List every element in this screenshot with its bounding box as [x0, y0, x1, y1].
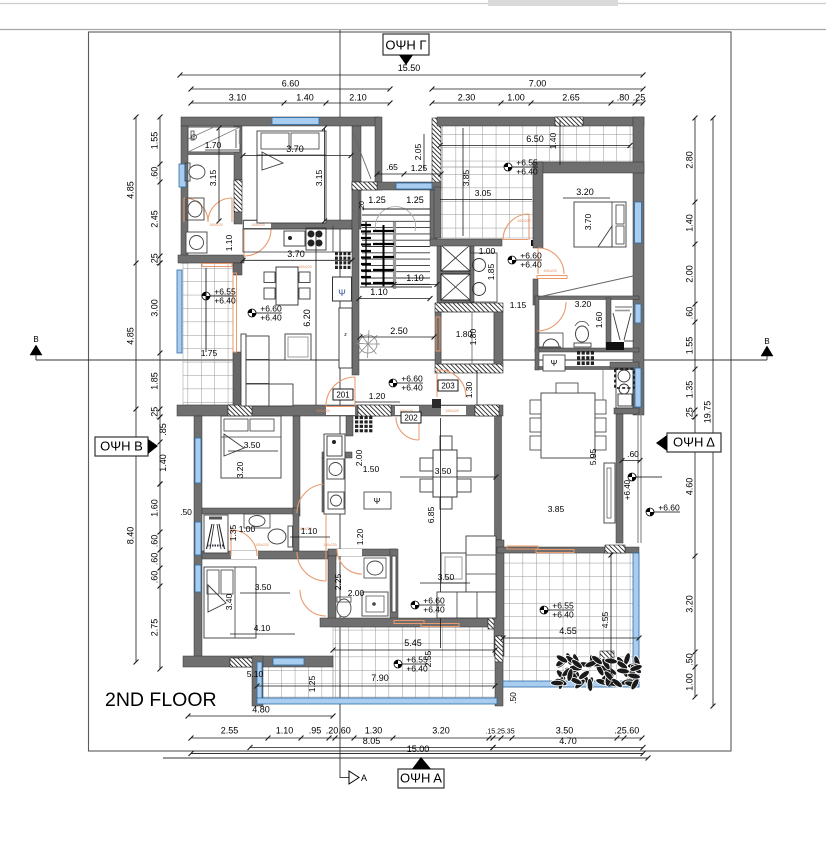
svg-text:Ψ: Ψ	[338, 288, 346, 298]
svg-text:1.10: 1.10	[406, 273, 424, 283]
svg-text:1.40: 1.40	[158, 454, 168, 472]
svg-text:+6.40: +6.40	[552, 610, 574, 620]
svg-text:1.25: 1.25	[406, 195, 424, 205]
svg-text:1.10: 1.10	[301, 526, 318, 536]
svg-text:.50: .50	[508, 692, 518, 704]
svg-text:1.40: 1.40	[296, 93, 314, 103]
svg-text:203: 203	[441, 382, 455, 391]
svg-text:.20: .20	[359, 201, 366, 211]
svg-text:2.50: 2.50	[390, 326, 408, 336]
svg-text:2.00: 2.00	[685, 265, 695, 283]
svg-text:.25: .25	[614, 726, 627, 736]
svg-text:1.10: 1.10	[224, 234, 234, 251]
svg-text:.60: .60	[627, 726, 640, 736]
svg-text:3.15: 3.15	[314, 169, 324, 186]
svg-text:2.75: 2.75	[150, 619, 160, 637]
svg-text:100x220: 100x220	[255, 543, 268, 547]
svg-text:3.85: 3.85	[461, 169, 471, 186]
svg-text:1.00: 1.00	[507, 93, 525, 103]
svg-text:.25: .25	[150, 253, 160, 266]
svg-text:7.00: 7.00	[529, 79, 547, 89]
svg-text:5.95: 5.95	[588, 448, 598, 465]
svg-text:4.85: 4.85	[126, 181, 136, 199]
svg-text:100x220: 100x220	[445, 409, 458, 413]
svg-text:1.50: 1.50	[363, 464, 380, 474]
svg-text:.25: .25	[150, 407, 160, 420]
svg-text:1.10: 1.10	[370, 287, 388, 297]
svg-text:3.20: 3.20	[235, 461, 245, 478]
svg-text:1.25: 1.25	[307, 675, 317, 692]
svg-text:1.80: 1.80	[468, 328, 478, 345]
svg-text:3.50: 3.50	[244, 440, 261, 450]
svg-text:3.50: 3.50	[556, 726, 574, 736]
svg-text:7.90: 7.90	[371, 673, 389, 683]
svg-text:3.20: 3.20	[575, 299, 592, 309]
svg-text:3.05: 3.05	[475, 188, 492, 198]
svg-text:ΟΨΗ Β: ΟΨΗ Β	[100, 439, 143, 454]
svg-text:3.20: 3.20	[432, 726, 450, 736]
svg-text:.60: .60	[338, 726, 351, 736]
svg-text:4.85: 4.85	[126, 327, 136, 345]
svg-text:+6.40: +6.40	[520, 260, 542, 270]
svg-text:.60: .60	[150, 553, 160, 566]
svg-text:3.50: 3.50	[255, 582, 272, 592]
svg-text:2.55: 2.55	[221, 726, 239, 736]
svg-text:.60: .60	[150, 167, 160, 180]
svg-text:15.50: 15.50	[398, 63, 421, 73]
svg-text:+6.60: +6.60	[658, 503, 680, 513]
svg-text:.95: .95	[309, 726, 322, 736]
svg-text:3.70: 3.70	[583, 213, 593, 230]
svg-text:2.05: 2.05	[413, 143, 423, 160]
svg-text:+6.40: +6.40	[516, 167, 538, 177]
svg-text:1.55: 1.55	[685, 337, 695, 355]
svg-text:1.25: 1.25	[368, 195, 386, 205]
svg-text:B: B	[33, 335, 38, 344]
svg-text:3.20: 3.20	[685, 595, 695, 613]
svg-text:4.70: 4.70	[559, 736, 577, 746]
svg-text:B: B	[764, 337, 769, 346]
svg-text:5.45: 5.45	[404, 638, 422, 648]
svg-text:8.40: 8.40	[126, 527, 136, 545]
svg-text:+6.40: +6.40	[623, 479, 632, 500]
svg-text:+6.40: +6.40	[401, 383, 423, 393]
svg-text:ΟΨΗ Δ: ΟΨΗ Δ	[673, 435, 715, 450]
svg-text:4.55: 4.55	[559, 626, 577, 636]
svg-text:5.10: 5.10	[247, 669, 264, 679]
svg-text:100x220: 100x220	[209, 223, 222, 227]
svg-text:100x220: 100x220	[251, 223, 264, 227]
svg-text:.50: .50	[180, 507, 192, 517]
svg-text:3.00: 3.00	[150, 299, 160, 317]
svg-text:+6.40: +6.40	[423, 605, 445, 615]
svg-text:1.25: 1.25	[411, 163, 428, 173]
svg-text:100x220: 100x220	[323, 543, 336, 547]
svg-text:1.60: 1.60	[150, 499, 160, 517]
svg-text:2.00: 2.00	[348, 588, 365, 598]
svg-text:+6.40: +6.40	[406, 664, 428, 674]
svg-text:.65: .65	[386, 162, 398, 172]
svg-text:6.85: 6.85	[426, 506, 436, 523]
svg-text:19.75: 19.75	[703, 401, 713, 424]
svg-text:4.10: 4.10	[254, 623, 271, 633]
svg-text:1.40: 1.40	[685, 214, 695, 232]
svg-text:ΟΨΗ Α: ΟΨΗ Α	[400, 771, 442, 786]
svg-text:1.20: 1.20	[369, 391, 386, 401]
svg-text:3.20: 3.20	[576, 187, 594, 197]
svg-text:1.85: 1.85	[150, 372, 160, 390]
svg-text:3.50: 3.50	[438, 572, 455, 582]
svg-text:8.05: 8.05	[363, 736, 381, 746]
svg-text:3.15: 3.15	[208, 169, 218, 186]
svg-text:15.00: 15.00	[407, 744, 430, 754]
svg-text:6.50: 6.50	[526, 134, 544, 144]
svg-text:.60: .60	[150, 535, 160, 548]
svg-text:3.70: 3.70	[287, 249, 305, 259]
svg-text:1.20: 1.20	[355, 528, 365, 545]
svg-text:6.20: 6.20	[302, 309, 312, 327]
svg-text:1.30: 1.30	[365, 726, 383, 736]
svg-text:1.00: 1.00	[479, 246, 496, 256]
svg-text:2.45: 2.45	[150, 210, 160, 228]
svg-text:.25: .25	[633, 93, 646, 103]
svg-text:1.35: 1.35	[685, 381, 695, 399]
svg-text:2.65: 2.65	[562, 93, 580, 103]
svg-text:2.25: 2.25	[333, 573, 343, 590]
svg-text:2.10: 2.10	[349, 93, 367, 103]
svg-text:202: 202	[404, 414, 418, 423]
svg-text:+6.40: +6.40	[260, 313, 282, 323]
svg-text:100x220: 100x220	[298, 265, 311, 269]
svg-text:.85: .85	[158, 423, 168, 436]
svg-text:1.40: 1.40	[548, 132, 558, 149]
svg-text:201: 201	[336, 391, 350, 400]
svg-text:.50: .50	[685, 653, 695, 666]
svg-text:.80: .80	[617, 93, 630, 103]
svg-text:.60: .60	[150, 571, 160, 584]
svg-text:.20: .20	[326, 726, 339, 736]
svg-text:.60: .60	[685, 307, 695, 320]
svg-text:1.00: 1.00	[239, 524, 256, 534]
svg-text:+6.40: +6.40	[214, 296, 236, 306]
svg-text:3.10: 3.10	[229, 93, 247, 103]
svg-text:4.60: 4.60	[685, 478, 695, 496]
svg-text:2ND FLOOR: 2ND FLOOR	[105, 689, 217, 711]
svg-text:1.00: 1.00	[685, 673, 695, 691]
svg-text:.25: .25	[685, 407, 695, 420]
svg-text:ΟΨΗ Γ: ΟΨΗ Γ	[385, 38, 426, 53]
svg-text:A: A	[361, 773, 367, 783]
svg-text:1.10: 1.10	[276, 726, 294, 736]
svg-text:1.35: 1.35	[228, 524, 238, 541]
svg-text:.60: .60	[627, 449, 639, 459]
svg-text:100x220: 100x220	[543, 269, 556, 273]
svg-text:.15.25.35: .15.25.35	[485, 729, 514, 736]
svg-text:1.15: 1.15	[510, 300, 527, 310]
svg-text:3.50: 3.50	[435, 466, 452, 476]
svg-text:Ψ: Ψ	[551, 359, 558, 368]
svg-text:4.80: 4.80	[252, 705, 270, 715]
svg-text:3.85: 3.85	[548, 504, 565, 514]
svg-text:1.60: 1.60	[594, 311, 604, 328]
svg-text:Ψ: Ψ	[374, 497, 381, 506]
svg-text:3.40: 3.40	[224, 593, 234, 610]
svg-text:2.30: 2.30	[458, 93, 476, 103]
svg-text:1.55: 1.55	[150, 132, 160, 150]
svg-text:1.85: 1.85	[486, 263, 496, 280]
svg-text:100x220: 100x220	[316, 409, 329, 413]
svg-text:6.60: 6.60	[282, 79, 300, 89]
svg-text:1.30: 1.30	[464, 381, 474, 398]
svg-text:2.80: 2.80	[685, 151, 695, 169]
svg-text:100x220: 100x220	[517, 219, 530, 223]
svg-text:4.55: 4.55	[600, 611, 610, 628]
svg-text:1.75: 1.75	[201, 348, 218, 358]
svg-text:3.70: 3.70	[286, 144, 304, 154]
